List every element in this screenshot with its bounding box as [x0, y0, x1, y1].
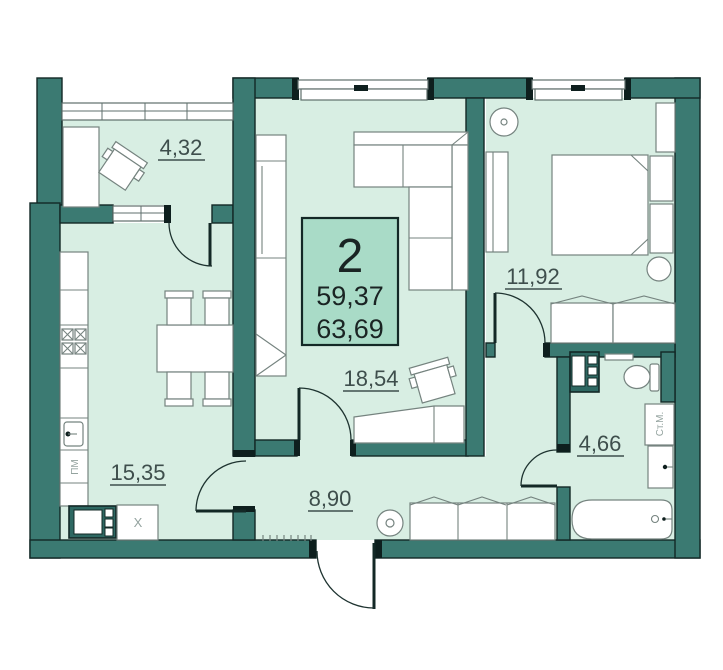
unit-area-living: 59,37: [316, 281, 384, 311]
wall-balcony-left: [37, 78, 62, 205]
kitchen-dark-unit: [69, 506, 116, 538]
washing-machine-label: Ст.М.: [655, 412, 666, 437]
fridge-cabinet: X: [117, 505, 158, 540]
living-window-vent: [354, 85, 368, 91]
hallway-wardrobe: [410, 497, 555, 540]
svg-text:X: X: [134, 515, 143, 530]
wall-top-seg2: [428, 78, 532, 98]
bedroom-cabinet-top: [656, 103, 675, 152]
wall-bathroom-left-bottom: [557, 487, 570, 540]
wall-bedroom-bottom-stub: [486, 343, 495, 357]
washing-machine: Ст.М.: [645, 404, 674, 445]
wall-balcony-kitchen-left: [60, 205, 113, 223]
bedroom-window-vent: [571, 85, 585, 91]
opening-bathroom-door: [557, 452, 570, 487]
hallway-area-label: 8,90: [309, 486, 352, 511]
unit-rooms-count: 2: [337, 230, 364, 283]
balcony-desk: [63, 127, 99, 207]
kitchen-sink: [64, 422, 83, 446]
wall-outer-bottom-left: [30, 540, 316, 558]
living-wardrobe: [256, 135, 286, 376]
bathtub: [572, 500, 672, 539]
floor-plan: ПМ X: [0, 0, 723, 670]
bathroom-sink: [648, 446, 673, 488]
entrance-door-arc: [317, 551, 374, 608]
opening-living-door: [297, 440, 352, 456]
dishwasher-label: ПМ: [70, 459, 81, 475]
unit-area-total: 63,69: [316, 314, 384, 344]
balcony-area-label: 4,32: [160, 135, 203, 160]
nightstand-top: [650, 156, 673, 201]
boiler-unit: [570, 352, 599, 392]
bedroom-area-label: 11,92: [506, 264, 559, 289]
bathroom-shelf: [605, 354, 633, 360]
unit-info-box: 2 59,37 63,69: [302, 218, 398, 345]
nightstand-bottom: [650, 204, 673, 253]
wall-kitchen-hall-stub: [233, 510, 255, 540]
toilet: [624, 364, 659, 391]
wall-bathroom-left-top: [557, 357, 570, 452]
bedroom-wardrobe: [486, 152, 508, 252]
wall-duct-stub: [661, 352, 675, 402]
dining-table: [157, 325, 233, 372]
kitchen-area-label: 15,35: [110, 460, 165, 485]
living-area-label: 18,54: [343, 366, 398, 391]
corridor-floor: [486, 357, 557, 456]
opening-balcony-kitchen: [170, 205, 212, 223]
bathroom-area-label: 4,66: [579, 431, 622, 456]
wall-outer-left: [30, 203, 60, 558]
wall-balcony-kitchen-right: [212, 205, 233, 223]
bed: [552, 155, 648, 255]
wall-living-bottom-left: [255, 440, 297, 456]
floor-plan-drawing: ПМ X: [0, 0, 723, 670]
wall-top-seg3: [625, 78, 700, 98]
wall-living-right: [466, 98, 484, 456]
wall-outer-bottom-right: [375, 540, 700, 558]
opening-kitchen-hall: [233, 456, 255, 510]
wall-living-left: [233, 78, 255, 456]
bedroom-stool: [647, 257, 671, 281]
bedroom-closets: [551, 296, 675, 343]
wall-outer-right: [675, 78, 700, 558]
opening-bedroom-door: [495, 343, 545, 357]
